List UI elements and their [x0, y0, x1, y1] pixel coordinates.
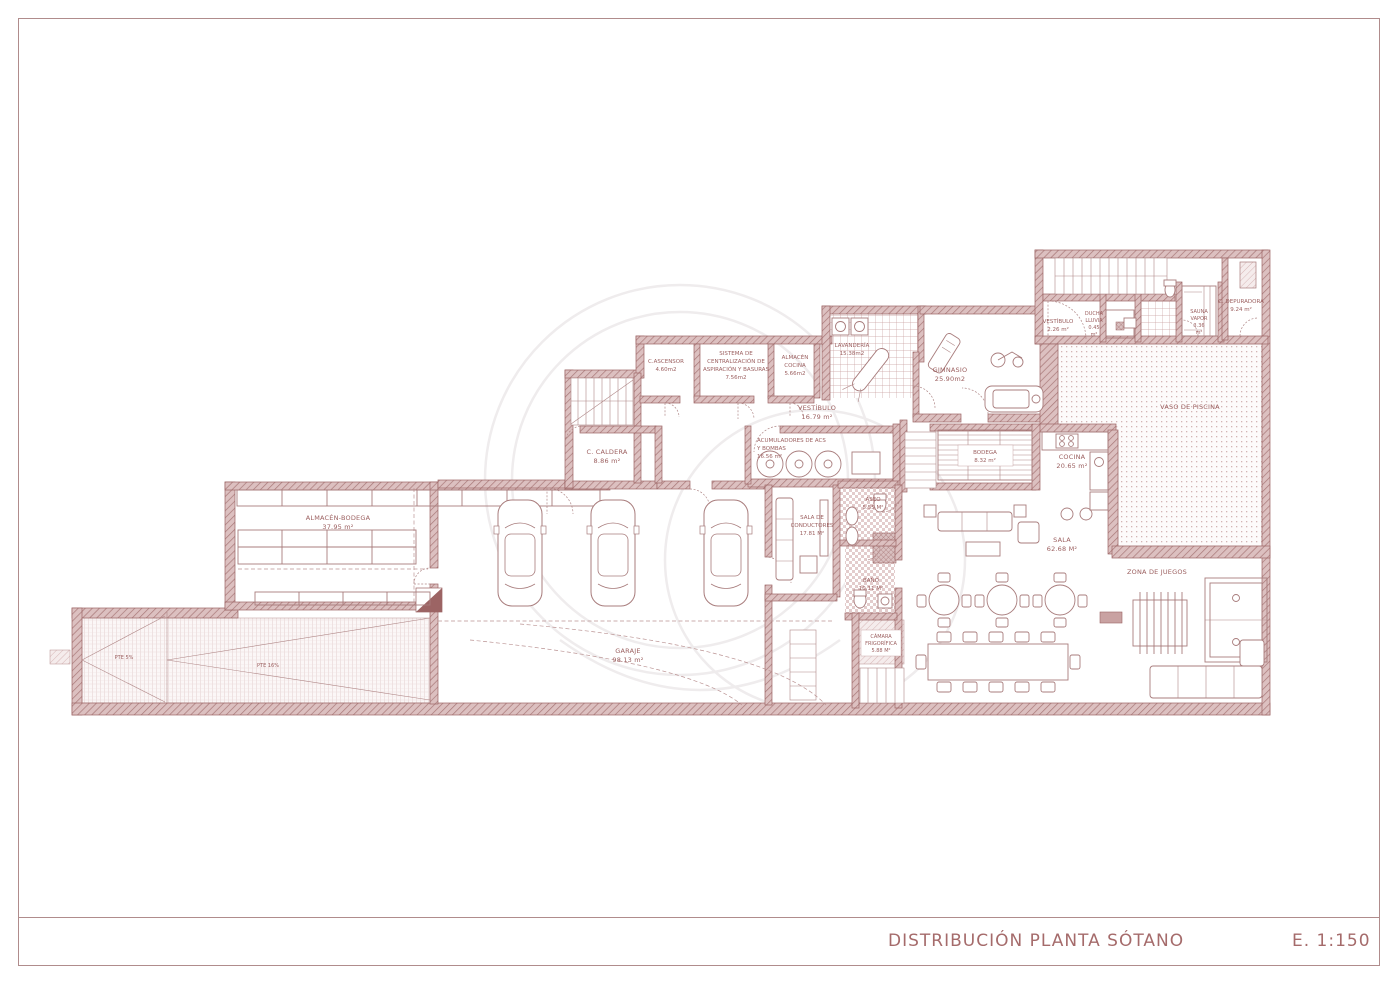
room-label-camara-2: FRIGORÍFICA [865, 640, 897, 647]
room-label-almacen-cocina-1: ALMACÉN [782, 353, 809, 361]
room-area-depuradora: 9.24 m² [1230, 306, 1252, 313]
room-label-caldera: C. CALDERA [586, 448, 627, 456]
drawing-scale: E. 1:150 [1292, 931, 1371, 951]
room-label-gimnasio: GIMNASIO [933, 366, 968, 374]
room-area-cocina: 20.65 m² [1056, 462, 1087, 470]
room-label-sauna-2: VAPOR [1191, 316, 1208, 322]
room-area-camara: 5.88 M² [871, 648, 890, 654]
room-label-vestibulo2: VESTÍBULO [1043, 318, 1074, 325]
room-label-vaso-piscina: VASO DE PISCINA [1160, 403, 1220, 411]
room-area-almacen-bodega: 37.95 m² [322, 523, 353, 531]
games-zone-furniture [1100, 578, 1267, 698]
wc-floor [1141, 301, 1176, 336]
pool-basin [1058, 344, 1262, 546]
parked-cars [494, 500, 752, 606]
room-area-caldera: 8.86 m² [594, 457, 621, 465]
room-label-acumuladores-2: Y BOMBAS [756, 446, 786, 452]
room-label-acumuladores-1: ACUMULADORES DE ACS [757, 438, 826, 444]
room-area-sala: 62.68 M² [1047, 545, 1078, 553]
room-area-sistema: 7.56m2 [725, 375, 746, 381]
room-label-conductores-1: SALA DE [800, 515, 824, 521]
room-label-camara-1: CÁMARA [870, 633, 892, 640]
room-label-garaje: GARAJE [615, 647, 640, 655]
kitchen-fixtures [1042, 432, 1108, 520]
room-label-sistema-3: ASPIRACIÓN Y BASURAS [703, 366, 770, 373]
room-area-conductores: 17.81 M² [800, 530, 824, 537]
room-area-aseo: 5.55 M² [863, 504, 884, 511]
room-area-bodega: 8.32 m² [974, 457, 996, 464]
room-label-bodega: BODEGA [973, 450, 997, 456]
ramp-slope-label-2: PTE 16% [257, 663, 279, 669]
room-area-sauna-1: 3.36 [1193, 323, 1204, 329]
room-label-sauna-1: SAUNA [1190, 309, 1208, 315]
room-label-ducha-1: DUCHA [1085, 311, 1104, 317]
room-label-depuradora: C. DEPURADORA [1218, 299, 1264, 305]
room-area-acumuladores: 16.56 m² [757, 453, 782, 460]
room-label-aseo: ASEO [865, 497, 881, 503]
room-area-ducha-1: 0.45 [1088, 325, 1099, 331]
room-area-ducha-2: m² [1091, 332, 1098, 338]
room-label-zona-juegos: ZONA DE JUEGOS [1127, 568, 1187, 576]
room-label-lavanderia: LAVANDERÍA [835, 342, 870, 349]
room-label-sistema-2: CENTRALIZACIÓN DE [707, 358, 765, 365]
room-area-almacen-cocina: 5.66m2 [784, 371, 805, 377]
room-area-sauna-2: m² [1196, 330, 1203, 336]
room-area-ascensor: 4.60m2 [655, 367, 676, 373]
title-block-separator [18, 917, 1380, 918]
room-area-garaje: 98.13 m² [612, 656, 643, 664]
shower-tray [873, 533, 896, 563]
drivers-room-furniture [776, 498, 828, 580]
drawing-sheet: ALMACÉN-BODEGA 37.95 m² GARAJE 98.13 m² … [0, 0, 1400, 986]
room-label-sala: SALA [1053, 536, 1071, 544]
room-label-cocina: COCINA [1059, 453, 1086, 461]
room-area-vestibulo2: 2.26 m² [1047, 326, 1069, 333]
room-area-gimnasio: 25.90m2 [935, 375, 965, 383]
room-label-sistema-1: SISTEMA DE [719, 351, 753, 357]
room-label-ascensor: C.ASCENSOR [648, 359, 684, 365]
sala-furniture [916, 505, 1087, 692]
ramp-slope-label-1: PTE 5% [115, 655, 134, 661]
room-label-almacen-cocina-2: COCINA [784, 363, 806, 369]
room-area-lavanderia: 15.38m2 [840, 351, 865, 357]
room-area-bano: 10.11 M² [859, 585, 883, 592]
room-label-ducha-2: LLUVIA [1085, 318, 1103, 324]
floor-plan-drawing: ALMACÉN-BODEGA 37.95 m² GARAJE 98.13 m² … [0, 0, 1400, 986]
room-label-conductores-2: CONDUCTORES [791, 523, 834, 529]
room-label-almacen-bodega: ALMACÉN-BODEGA [306, 513, 371, 522]
drawing-title: DISTRIBUCIÓN PLANTA SÓTANO [888, 931, 1184, 951]
room-label-vestibulo: VESTÍBULO [798, 403, 836, 412]
room-label-bano: BAÑO [863, 577, 880, 584]
room-area-vestibulo: 16.79 m² [801, 413, 832, 421]
level-marker [50, 650, 70, 664]
garage-ramp [82, 618, 430, 703]
